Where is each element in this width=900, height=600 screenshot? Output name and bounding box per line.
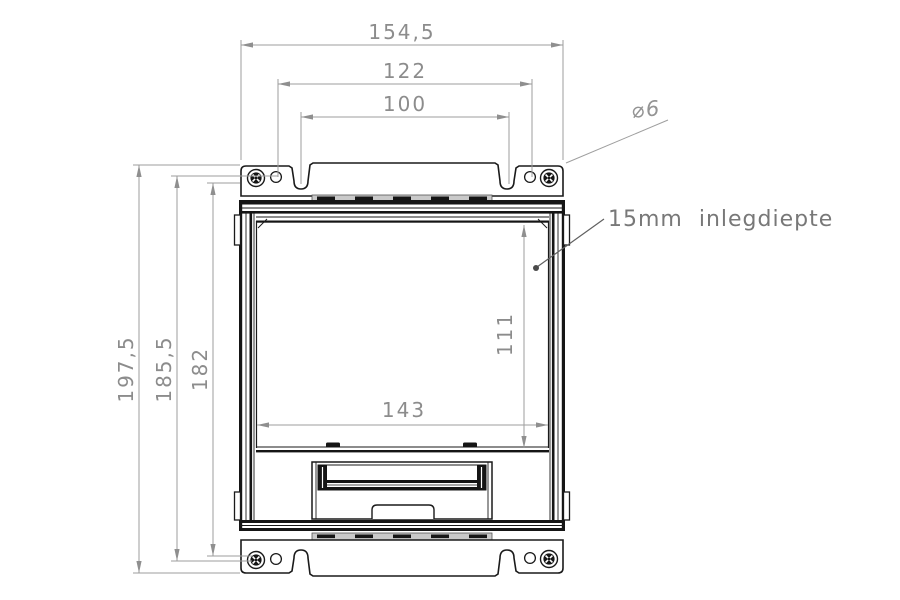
drawer-handle (372, 505, 434, 519)
divider-tab (463, 443, 477, 448)
leader-dot (533, 265, 539, 271)
top-flange-outline (241, 163, 563, 196)
right-wall-outer (562, 204, 565, 531)
hole-top-right (525, 172, 536, 183)
frame-body-bottom (239, 520, 565, 531)
dim-hole-diameter-label: ⌀6 (630, 96, 662, 123)
bottom-flange-outline (241, 540, 563, 576)
technical-drawing-page: 154,5 122 100 197,5 185,5 182 (0, 0, 900, 600)
insert-depth-label: 15mm inlegdiepte (608, 207, 833, 232)
right-wall-inner-band (552, 213, 555, 520)
vent-slot (469, 535, 487, 539)
bottom-flange (241, 540, 563, 576)
left-wall-outer (239, 204, 242, 531)
width-dimensions: 154,5 122 100 (241, 20, 563, 184)
bottom-vent-band (312, 533, 492, 540)
hole-top-left (271, 172, 282, 183)
insert-depth-note: 15mm inlegdiepte (533, 207, 833, 271)
vent-slot (317, 197, 335, 201)
dim-overall-width-label: 154,5 (368, 20, 435, 44)
vent-slot (431, 535, 449, 539)
vent-slot (355, 535, 373, 539)
opening-dimensions: 111 143 (257, 225, 548, 448)
vent-slot (393, 535, 411, 539)
vent-slot (469, 197, 487, 201)
body-line (239, 520, 565, 523)
drawer-slot (318, 465, 486, 490)
vent-slot (317, 535, 335, 539)
vent-slot (393, 197, 411, 201)
height-dimensions: 197,5 185,5 182 (114, 165, 278, 573)
dim-hole-spacing-width-label: 122 (383, 59, 427, 83)
hole-bottom-right (525, 553, 536, 564)
opening-lip-edge (256, 221, 549, 223)
body-bottom-edge (239, 528, 565, 531)
opening-divider (256, 443, 549, 453)
clip-bottom-left (235, 492, 241, 520)
left-wall-inner-band (250, 213, 253, 520)
corner-chamfer (538, 219, 547, 228)
body-line (239, 211, 565, 214)
divider-edge (256, 450, 549, 452)
clip-bottom-right (564, 492, 570, 520)
clip-top-left (235, 215, 241, 245)
floor-box-mounting-frame-drawing: 154,5 122 100 197,5 185,5 182 (0, 0, 900, 600)
divider-tab (326, 443, 340, 448)
dim-frame-height-label: 182 (188, 347, 212, 391)
dim-hole-spacing-height-label: 185,5 (152, 335, 176, 402)
dim-slot-spacing-width-label: 100 (383, 92, 427, 116)
drawer-rail (327, 480, 477, 483)
dim-opening-height-label: 111 (493, 312, 517, 356)
dim-overall-height-label: 197,5 (114, 335, 138, 402)
drawer-unit (312, 462, 492, 519)
vent-slot (355, 197, 373, 201)
frame-body-top (239, 200, 565, 228)
dim-opening-width-label: 143 (382, 398, 426, 422)
corner-chamfer (258, 219, 267, 228)
clip-top-right (564, 215, 570, 245)
hole-bottom-left (271, 554, 282, 565)
hole-diameter-callout: ⌀6 (566, 96, 668, 163)
top-flange (241, 163, 563, 196)
vent-slot (431, 197, 449, 201)
body-top-edge (239, 200, 565, 205)
drawer-rail (327, 487, 477, 490)
